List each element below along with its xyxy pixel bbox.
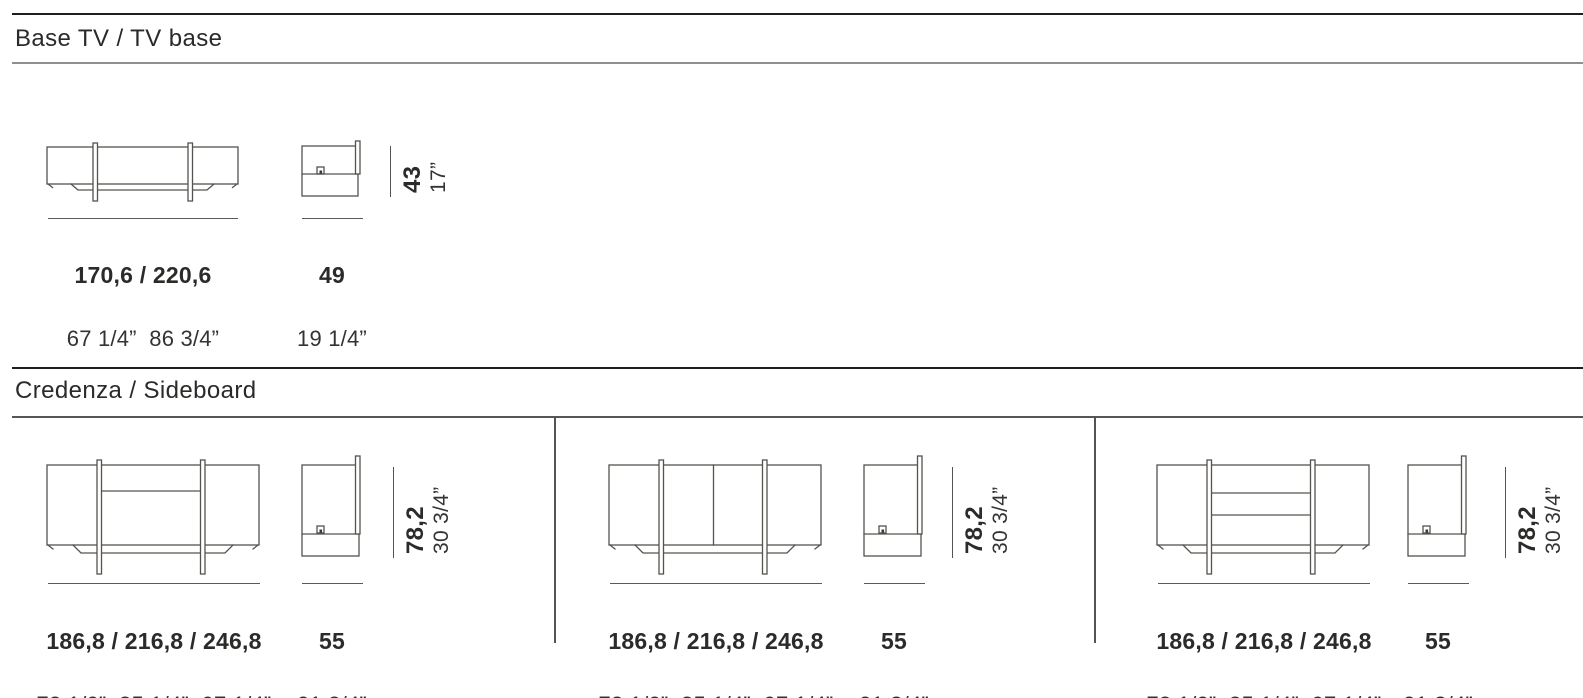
credenza-height-cm: 78,2 <box>1514 487 1541 554</box>
credenza-cell-2: 78,2 30 3/4” 186,8 / 216,8 / 246,8 73 1/… <box>562 0 1032 698</box>
cell-divider <box>1094 417 1096 643</box>
credenza-front-width-cm: 186,8 / 216,8 / 246,8 <box>599 628 834 655</box>
credenza-front-width-line <box>48 583 260 584</box>
credenza-front-width-inches: 73 1/2” 85 1/4” 97 1/4” <box>1147 691 1382 698</box>
credenza-front-width-labels: 186,8 / 216,8 / 246,8 73 1/2” 85 1/4” 97… <box>599 592 834 698</box>
credenza-side-width-line <box>302 583 363 584</box>
credenza-side-view-drawing <box>1406 454 1472 558</box>
credenza-side-width-inches: 21 3/4” <box>297 691 367 698</box>
credenza-height-inches: 30 3/4” <box>988 487 1013 554</box>
credenza-front-width-cm: 186,8 / 216,8 / 246,8 <box>1147 628 1382 655</box>
cell-divider <box>554 417 556 643</box>
credenza-front-width-inches: 73 1/2” 85 1/4” 97 1/4” <box>599 691 834 698</box>
credenza-side-width-labels: 55 21 3/4” <box>297 592 367 698</box>
credenza-cell-1: 78,2 30 3/4” 186,8 / 216,8 / 246,8 73 1/… <box>0 0 470 698</box>
credenza-height-cm: 78,2 <box>402 487 429 554</box>
credenza-front-width-labels: 186,8 / 216,8 / 246,8 73 1/2” 85 1/4” 97… <box>1147 592 1382 698</box>
height-dimension-line <box>393 467 394 558</box>
credenza-drawers-front-view-drawing <box>1155 457 1371 578</box>
credenza-side-width-line <box>1408 583 1469 584</box>
credenza-height-cm: 78,2 <box>961 487 988 554</box>
credenza-front-width-inches: 73 1/2” 85 1/4” 97 1/4” <box>37 691 272 698</box>
credenza-front-width-labels: 186,8 / 216,8 / 246,8 73 1/2” 85 1/4” 97… <box>37 592 272 698</box>
height-dimension-line <box>952 467 953 558</box>
credenza-side-width-line <box>864 583 925 584</box>
credenza-side-view-drawing <box>300 454 366 558</box>
credenza-side-width-labels: 55 21 3/4” <box>859 592 929 698</box>
credenza-side-view-drawing <box>862 454 928 558</box>
credenza-height-inches: 30 3/4” <box>1541 487 1566 554</box>
dimension-sheet: Base TV / TV base 43 17” 170,6 / 220,6 6… <box>0 0 1583 698</box>
credenza-front-width-line <box>610 583 822 584</box>
credenza-side-width-cm: 55 <box>1403 628 1473 655</box>
height-dimension-line <box>1505 467 1506 558</box>
credenza-side-width-cm: 55 <box>859 628 929 655</box>
credenza-cell-3: 78,2 30 3/4” 186,8 / 216,8 / 246,8 73 1/… <box>1110 0 1580 698</box>
credenza-four-door-front-view-drawing <box>607 457 823 578</box>
credenza-side-width-inches: 21 3/4” <box>1403 691 1473 698</box>
credenza-height-inches: 30 3/4” <box>429 487 454 554</box>
credenza-front-width-line <box>1158 583 1370 584</box>
credenza-side-width-cm: 55 <box>297 628 367 655</box>
credenza-side-width-labels: 55 21 3/4” <box>1403 592 1473 698</box>
credenza-side-width-inches: 21 3/4” <box>859 691 929 698</box>
credenza-front-width-cm: 186,8 / 216,8 / 246,8 <box>37 628 272 655</box>
credenza-shelf-front-view-drawing <box>45 457 261 578</box>
